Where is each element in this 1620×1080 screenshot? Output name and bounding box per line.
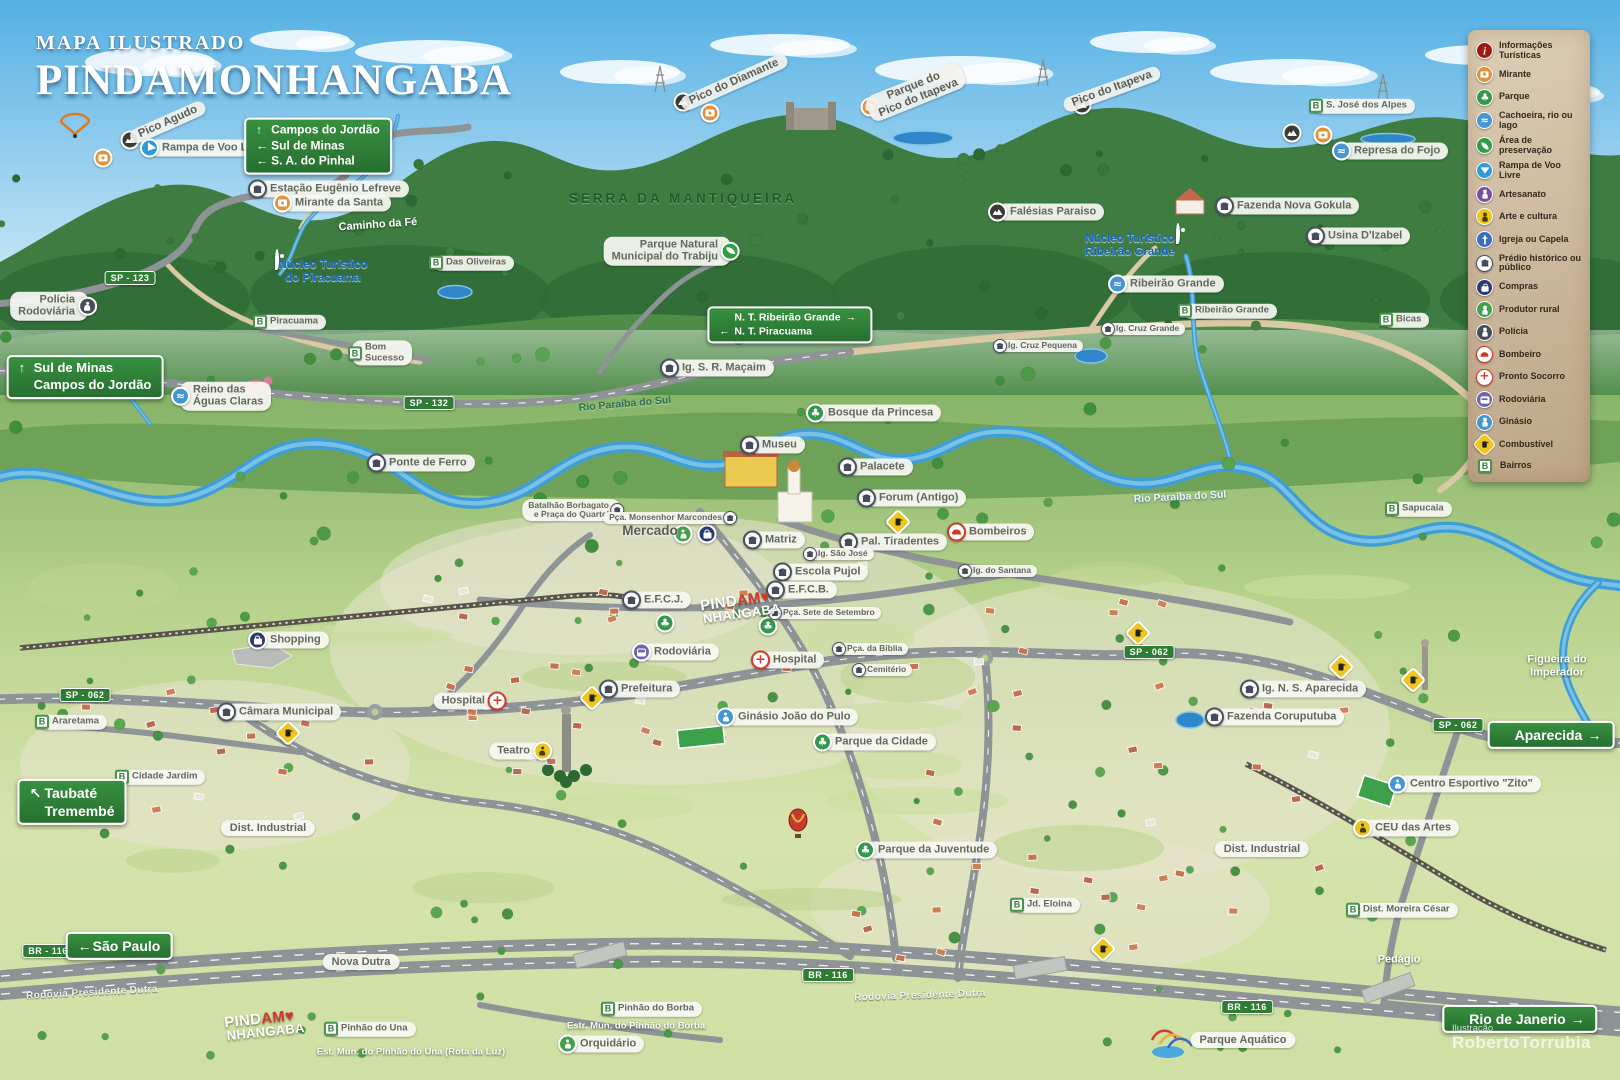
poi-text: Parque da Juventude: [865, 842, 997, 858]
poi-label: Ig. N. S. Aparecida: [1240, 680, 1366, 699]
poi-text: PolíciaRodoviária: [10, 292, 88, 321]
hang-glider-icon: [1476, 162, 1493, 179]
legend-item-ginasio: Ginásio: [1476, 414, 1582, 431]
district-badge: B: [253, 315, 267, 329]
label-line: Parque Natural: [612, 239, 718, 251]
firefighter-icon: [947, 523, 966, 542]
poi-label: ≈Represa do Fojo: [1332, 142, 1448, 161]
poi-text: Pça. Monsenhor Marcondes: [603, 512, 733, 525]
historic-building-icon: [217, 703, 236, 722]
sign-arrow: →: [846, 311, 861, 325]
poi-label: ♣Parque da Juventude: [856, 841, 997, 860]
poi-label: Ig. Cruz Grande: [1101, 322, 1185, 336]
label-line: Polícia: [18, 294, 75, 306]
poi-label: CEU das Artes: [1353, 819, 1459, 838]
district-label: BS. José dos Alpes: [1309, 99, 1415, 114]
legend-item-mirante: Mirante: [1476, 66, 1582, 83]
text-label: SERRA DA MANTIQUEIRA: [569, 191, 798, 207]
poi-label: Câmara Municipal: [217, 703, 341, 722]
legend-item-preservacao: Área de preservação: [1476, 136, 1582, 155]
poi-text: Reino dasÁguas Claras: [180, 382, 271, 411]
fuel-icon: [1472, 433, 1496, 457]
historic-building-icon: [740, 436, 759, 455]
text-label: Rodovia Presidente Dutra: [854, 988, 986, 1004]
poi-label: Teatro: [489, 742, 552, 761]
text-label: Est. Mun. do Pinhão do Una (Rota da Luz): [317, 1048, 505, 1059]
road-number-badge: BR - 116: [1221, 1000, 1273, 1014]
poi-text: Ig. S. R. Maçaim: [669, 360, 774, 376]
district-label: BBomSucesso: [348, 340, 412, 365]
bus-station-icon: [632, 643, 651, 662]
district-text: Das Oliveiras: [433, 256, 514, 271]
park-icon: ♣: [813, 733, 832, 752]
district-badge: B: [1178, 304, 1192, 318]
sign-aparecida: Aparecida→: [1488, 721, 1615, 749]
poi-label: Forum (Antigo): [857, 489, 966, 508]
poi-text: Shopping: [257, 632, 329, 648]
peak-icon: [988, 203, 1007, 222]
rural-producer-icon: [558, 1035, 577, 1054]
legend-item-label: Cachoeira, rio ou lago: [1499, 111, 1582, 130]
preservation-icon: [1476, 137, 1493, 154]
legend-item-produtor: Produtor rural: [1476, 301, 1582, 318]
historic-building-icon: [993, 339, 1007, 353]
gym-icon: [716, 708, 735, 727]
park-icon: ♣: [656, 614, 675, 633]
district-label: BDas Oliveiras: [429, 256, 514, 271]
district-text: Ribeirão Grande: [1182, 304, 1277, 319]
preservation-icon: [721, 242, 740, 261]
poi-text: Bombeiros: [956, 524, 1034, 540]
place-label: Parque Aquático: [1191, 1032, 1296, 1048]
district-badge: B: [1379, 313, 1393, 327]
poi-label: Escola Pujol: [773, 563, 868, 582]
poi-label: Pça. da Bíblia: [832, 642, 908, 656]
poi-label: +Hospital: [751, 651, 824, 670]
historic-building-icon: [857, 489, 876, 508]
info-icon: i: [1476, 42, 1493, 59]
road-number-badge: BR - 116: [802, 968, 854, 982]
district-label: BAraretama: [35, 715, 107, 730]
district-text: Araretama: [39, 715, 107, 730]
sign-row: ↑Sul de Minas: [19, 360, 152, 377]
poi-text: Represa do Fojo: [1341, 143, 1448, 159]
district-badge: B: [1346, 903, 1360, 917]
historic-building-icon: [1101, 322, 1115, 336]
district-badge: B: [1010, 898, 1024, 912]
historic-building-icon: [1205, 708, 1224, 727]
tourist-nucleus-label: Núcleo Turísticodo Piracuama: [278, 259, 367, 285]
label-line: do Piracuama: [278, 272, 367, 285]
sign-row: ←São Paulo: [78, 937, 161, 955]
legend-item-label: Polícia: [1499, 327, 1528, 337]
poi-label: Palacete: [838, 458, 913, 477]
district-label: BJd. Eloina: [1010, 898, 1080, 913]
map-pin-drop: [1176, 223, 1180, 244]
legend-item-label: Bombeiro: [1499, 350, 1541, 360]
poi-label: Museu: [740, 436, 805, 455]
text-label: Rodovia Presidente Dutra: [26, 984, 158, 1002]
district-badge: B: [348, 346, 362, 360]
historic-building-icon: [723, 511, 737, 525]
label-line: Reino das: [193, 384, 263, 396]
legend-item-label: Igreja ou Capela: [1499, 235, 1569, 245]
first-aid-icon: +: [751, 651, 770, 670]
district-label: BDist. Moreira César: [1346, 903, 1458, 918]
poi-label: Orquidário: [558, 1035, 644, 1054]
district-badge: B: [35, 715, 49, 729]
poi-label: Pça. Sete de Setembro: [768, 606, 881, 620]
peak-label: Pico do Itapeva: [1061, 65, 1162, 114]
legend-item-cachoeira: ≈Cachoeira, rio ou lago: [1476, 111, 1582, 130]
poi-label: Falésias Paraiso: [988, 203, 1104, 222]
historic-building-icon: [1306, 227, 1325, 246]
sign-text: N. T. Ribeirão Grande: [734, 311, 840, 323]
poi-label: Usina D'Izabel: [1306, 227, 1410, 246]
poi-text: Centro Esportivo "Zito": [1397, 776, 1541, 792]
historic-building-icon: [803, 547, 817, 561]
place-label: Nova Dutra: [323, 954, 400, 970]
poi-label: Centro Esportivo "Zito": [1388, 775, 1541, 794]
historic-building-icon: [1240, 680, 1259, 699]
sign-text: S. A. do Pinhal: [271, 154, 355, 168]
sign-text: Campos do Jordão: [34, 377, 152, 392]
fuel-icon: [885, 509, 912, 536]
poi-label: ♣Parque da Cidade: [813, 733, 936, 752]
sign-text: N. T. Piracuama: [734, 325, 812, 337]
poi-label: Bombeiros: [947, 523, 1034, 542]
poi-text: Usina D'Izabel: [1315, 228, 1410, 244]
place-label: Dist. Industrial: [1215, 841, 1309, 857]
map-pin-icon: [1176, 225, 1180, 243]
historic-building-icon: [838, 458, 857, 477]
sign-arrow: ←: [78, 937, 93, 955]
district-badge: B: [429, 256, 443, 270]
text-label: Figueira doImperador: [1527, 653, 1586, 678]
district-text: Dist. Moreira César: [1350, 903, 1458, 918]
sign-row: N. T. Ribeirão Grande→: [719, 311, 860, 325]
peak-label: Pico do Diamante: [679, 52, 790, 112]
legend-item-bombeiro: Bombeiro: [1476, 346, 1582, 363]
poi-text: Forum (Antigo): [866, 490, 966, 506]
text-label: Estr. Mun. do Pinhão do Borba: [567, 1022, 705, 1033]
legend-item-label: Mirante: [1499, 70, 1531, 80]
label-line: Figueira do: [1527, 653, 1586, 666]
road-number-badge: SP - 132: [404, 396, 455, 410]
legend-item-combustivel: Combustível: [1476, 436, 1582, 453]
poi-label: Parque NaturalMunicipal do Trabiju: [604, 237, 740, 266]
bus-station-icon: [1476, 391, 1493, 408]
police-icon: [1476, 324, 1493, 341]
poi-text: Ig. Cruz Pequena: [997, 340, 1083, 353]
district-badge: B: [324, 1022, 338, 1036]
historic-building-icon: [1215, 197, 1234, 216]
firefighter-icon: [1476, 346, 1493, 363]
label-line: e Praça do Quartel: [528, 510, 609, 520]
police-icon: [78, 297, 97, 316]
legend-item-label: Prédio histórico ou público: [1499, 254, 1582, 273]
poi-label: Ig. do Santana: [958, 564, 1037, 578]
gym-icon: [1476, 414, 1493, 431]
sign-row: ↖Taubaté: [29, 784, 114, 802]
poi-text: Fazenda Coruputuba: [1214, 709, 1344, 725]
district-label: BCidade Jardim: [115, 770, 205, 785]
district-label: BBicas: [1379, 313, 1429, 328]
label-line: Núcleo Turístico: [1085, 233, 1174, 246]
district-badge: B: [1478, 459, 1492, 473]
historic-building-icon: [248, 180, 267, 199]
road-number-badge: SP - 062: [60, 688, 111, 702]
historic-building-icon: [660, 359, 679, 378]
poi-label: Shopping: [248, 631, 329, 650]
poi-label: Ig. S. R. Maçaim: [660, 359, 774, 378]
historic-building-icon: [367, 454, 386, 473]
historic-building-icon: [852, 663, 866, 677]
poi-label: Mirante da Santa: [273, 194, 391, 213]
park-icon: ♣: [856, 841, 875, 860]
label-line: Núcleo Turístico: [278, 259, 367, 272]
poi-label: Rodoviária: [632, 643, 719, 662]
legend-item-artesanato: Artesanato: [1476, 186, 1582, 203]
fuel-icon: [1090, 936, 1117, 963]
church-icon: †: [1476, 231, 1493, 248]
first-aid-icon: +: [1476, 369, 1493, 386]
legend-item-label: Ginásio: [1499, 417, 1532, 427]
poi-text: Pça. da Bíblia: [836, 643, 908, 656]
place-label: Dist. Industrial: [221, 820, 315, 836]
poi-text: CEU das Artes: [1362, 820, 1459, 836]
legend-item-igreja: †Igreja ou Capela: [1476, 231, 1582, 248]
district-badge: B: [1309, 99, 1323, 113]
sign-text: Aparecida: [1515, 727, 1583, 743]
waterfall-icon: ≈: [1332, 142, 1351, 161]
arts-icon: [533, 742, 552, 761]
gym-icon: [1388, 775, 1407, 794]
label-line: Municipal do Trabiju: [612, 251, 718, 263]
poi-text: Falésias Paraiso: [997, 204, 1104, 220]
label-line: Imperador: [1527, 666, 1586, 679]
poi-label: Ig. Cruz Pequena: [993, 339, 1083, 353]
district-label: BPinhão do Una: [324, 1022, 416, 1037]
poi-text: Rodoviária: [641, 644, 719, 660]
legend-item-label: Arte e cultura: [1499, 212, 1557, 222]
poi-text: Ribeirão Grande: [1117, 276, 1224, 292]
legend-item-label: Bairros: [1500, 461, 1532, 471]
viewpoint-icon: [1314, 126, 1333, 145]
sign-row: Aparecida→: [1500, 726, 1603, 744]
arts-icon: [1476, 208, 1493, 225]
text-label: Pedágio: [1378, 954, 1421, 967]
legend-item-predio: Prédio histórico ou público: [1476, 254, 1582, 273]
fuel-icon: [1328, 654, 1355, 681]
poi-text: Ginásio João do Pulo: [725, 709, 858, 725]
legend-item-rodoviaria: Rodoviária: [1476, 391, 1582, 408]
sign-arrow: ↑: [256, 123, 271, 139]
road-number-badge: SP - 062: [1124, 645, 1175, 659]
district-text: Piracuama: [257, 315, 326, 330]
legend-item-rampa: Rampa de Voo Livre: [1476, 161, 1582, 180]
sign-text: Tremembé: [44, 803, 114, 819]
historic-building-icon: [599, 680, 618, 699]
viewpoint-icon: [273, 194, 292, 213]
sign-arrow: ←: [719, 325, 734, 339]
legend-item-label: Rodoviária: [1499, 395, 1546, 405]
text-label: Rio Paraíba do Sul: [1133, 489, 1226, 506]
district-label: BRibeirão Grande: [1178, 304, 1277, 319]
poi-label: Prefeitura: [599, 680, 680, 699]
poi-text: Parque da Cidade: [822, 734, 936, 750]
text-label: Rio Paraíba do Sul: [578, 394, 671, 414]
legend-item-label: Informações Turísticas: [1499, 41, 1582, 60]
legend-item-label: Rampa de Voo Livre: [1499, 161, 1582, 180]
district-badge: B: [1385, 502, 1399, 516]
sign-text: Campos do Jordão: [271, 123, 380, 137]
historic-building-icon: [1476, 255, 1493, 272]
label-line: Águas Claras: [193, 396, 263, 408]
district-badge: B: [601, 1002, 615, 1016]
historic-building-icon: [773, 563, 792, 582]
sign-text: São Paulo: [93, 938, 161, 954]
poi-label: +Hospital: [434, 692, 507, 711]
park-icon: ♣: [1476, 89, 1493, 106]
sign-nucleos-turisticos: N. T. Ribeirão Grande→←N. T. Piracuama: [707, 306, 872, 343]
poi-text: Ponte de Ferro: [376, 455, 475, 471]
sign-text: Sul de Minas: [271, 138, 344, 152]
district-label: BSapucaia: [1385, 502, 1452, 517]
viewpoint-icon: [1476, 66, 1493, 83]
map-title: MAPA ILUSTRADO PINDAMONHANGABA: [36, 32, 512, 105]
sign-row: ↑Campos do Jordão: [256, 123, 380, 139]
map-labels-layer: Estação Eugênio LefreveMirante da SantaR…: [0, 0, 1620, 1080]
text-label: Caminho da Fé: [338, 216, 418, 234]
poi-label: ≈Ribeirão Grande: [1108, 275, 1224, 294]
shopping-icon: [1476, 279, 1493, 296]
sign-taubate: ↖TaubatéTremembé: [17, 779, 126, 825]
poi-label: Fazenda Nova Gokula: [1215, 197, 1359, 216]
legend-item-label: Área de preservação: [1499, 136, 1582, 155]
waterfall-icon: ≈: [171, 387, 190, 406]
poi-text: Fazenda Nova Gokula: [1224, 198, 1359, 214]
poi-text: Escola Pujol: [782, 564, 868, 580]
legend-item-parque: ♣Parque: [1476, 89, 1582, 106]
legend-item-compras: Compras: [1476, 279, 1582, 296]
district-text: Cidade Jardim: [119, 770, 205, 785]
poi-label: Ig. São José: [803, 547, 874, 561]
road-number-badge: SP - 123: [105, 271, 156, 285]
poi-text: Orquidário: [567, 1036, 644, 1052]
poi-label: PolíciaRodoviária: [10, 292, 97, 321]
sign-row: Campos do Jordão: [19, 377, 152, 394]
arts-icon: [1353, 819, 1372, 838]
poi-label: E.F.C.J.: [622, 591, 691, 610]
pindamonhangaba-logo: PINDAM♥NHANGABA: [215, 1008, 306, 1044]
sign-sao-paulo: ←São Paulo: [66, 932, 173, 960]
historic-building-icon: [743, 531, 762, 550]
sign-row: ←S. A. do Pinhal: [256, 154, 380, 170]
historic-building-icon: [622, 591, 641, 610]
peak-icon: [1283, 124, 1302, 143]
legend-item-policia: Polícia: [1476, 324, 1582, 341]
sign-text: Taubaté: [44, 785, 97, 801]
tourist-nucleus-label: Núcleo TurísticoRibeirão Grande: [1085, 233, 1174, 259]
road-number-badge: SP - 062: [1433, 718, 1484, 732]
park-icon: ♣: [806, 404, 825, 423]
poi-label: Ginásio João do Pulo: [716, 708, 858, 727]
sign-arrow: ←: [256, 154, 271, 170]
sign-arrow: ←: [256, 138, 271, 154]
viewpoint-icon: [94, 149, 113, 168]
sign-row: ←Sul de Minas: [256, 138, 380, 154]
poi-label: Pça. Monsenhor Marcondes: [603, 511, 737, 525]
historic-building-icon: [958, 564, 972, 578]
legend-item-label: Produtor rural: [1499, 305, 1560, 315]
legend-panel: iInformações TurísticasMirante♣Parque≈Ca…: [1468, 30, 1590, 482]
poi-label: Ponte de Ferro: [367, 454, 475, 473]
poi-text: Ig. do Santana: [962, 565, 1037, 578]
legend-item-pronto: +Pronto Socorro: [1476, 369, 1582, 386]
poi-text: Ig. N. S. Aparecida: [1249, 681, 1366, 697]
sign-text: Sul de Minas: [34, 360, 113, 375]
credit: Ilustração RobertoTorrubia: [1452, 1024, 1591, 1052]
poi-text: Bosque da Princesa: [815, 405, 941, 421]
sign-sul-de-minas: ↑Sul de MinasCampos do Jordão: [7, 355, 164, 399]
poi-label: Fazenda Coruputuba: [1205, 708, 1344, 727]
shopping-icon: [248, 631, 267, 650]
poi-text: Câmara Municipal: [226, 704, 341, 720]
district-label: BPiracuama: [253, 315, 326, 330]
poi-text: Ig. Cruz Grande: [1105, 323, 1185, 336]
legend-item-label: Combustível: [1499, 440, 1553, 450]
fuel-icon: [275, 720, 302, 747]
rural-producer-icon: [1476, 301, 1493, 318]
credit-name: RobertoTorrubia: [1452, 1034, 1591, 1052]
map-title-kicker: MAPA ILUSTRADO: [36, 32, 512, 55]
historic-building-icon: [832, 642, 846, 656]
illustrated-map: Estação Eugênio LefreveMirante da SantaR…: [0, 0, 1620, 1080]
crafts-icon: [1476, 186, 1493, 203]
poi-text: Parque NaturalMunicipal do Trabiju: [604, 237, 731, 266]
district-text: S. José dos Alpes: [1313, 99, 1415, 114]
sign-arrow: →: [1587, 726, 1602, 744]
fuel-icon: [1400, 667, 1427, 694]
peak-label: Parque doPico do Itapeva: [863, 60, 968, 124]
label-line: Rodoviária: [18, 306, 75, 318]
poi-label: ≈Reino dasÁguas Claras: [171, 382, 271, 411]
district-text: Pinhão do Borba: [605, 1002, 702, 1017]
legend-item-label: Parque: [1499, 92, 1530, 102]
sign-arrow: ↖: [29, 784, 44, 802]
poi-label: Matriz: [743, 531, 805, 550]
first-aid-icon: +: [488, 692, 507, 711]
poi-text: Pça. Sete de Setembro: [772, 607, 881, 620]
shopping-icon: [698, 525, 717, 544]
legend-item-label: Artesanato: [1499, 190, 1546, 200]
sign-campos-do-jordao: ↑Campos do Jordão←Sul de Minas←S. A. do …: [244, 118, 392, 175]
waterfall-icon: ≈: [1108, 275, 1127, 294]
poi-label: Cemitério: [852, 663, 912, 677]
district-label: BPinhão do Borba: [601, 1002, 702, 1017]
poi-label: ♣Bosque da Princesa: [806, 404, 941, 423]
poi-text: Prefeitura: [608, 681, 680, 697]
sign-row: ←N. T. Piracuama: [719, 325, 860, 339]
legend-item-arte: Arte e cultura: [1476, 208, 1582, 225]
map-title-name: PINDAMONHANGABA: [36, 56, 512, 105]
viewpoint-icon: [701, 104, 720, 123]
hang-glider-icon: [140, 139, 159, 158]
district-text: Pinhão do Una: [328, 1022, 416, 1037]
text-label: Mercado: [622, 523, 678, 539]
legend-item-label: Pronto Socorro: [1499, 372, 1565, 382]
